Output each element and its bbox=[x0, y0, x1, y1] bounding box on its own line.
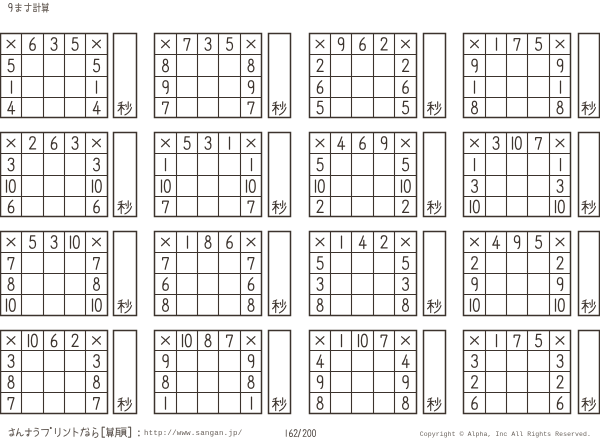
svg-text:http://www.sangan.jp/: http://www.sangan.jp/ bbox=[144, 430, 243, 438]
svg-text:Copyright © Alpha, Inc All Rig: Copyright © Alpha, Inc All Rights Reserv… bbox=[420, 430, 591, 438]
